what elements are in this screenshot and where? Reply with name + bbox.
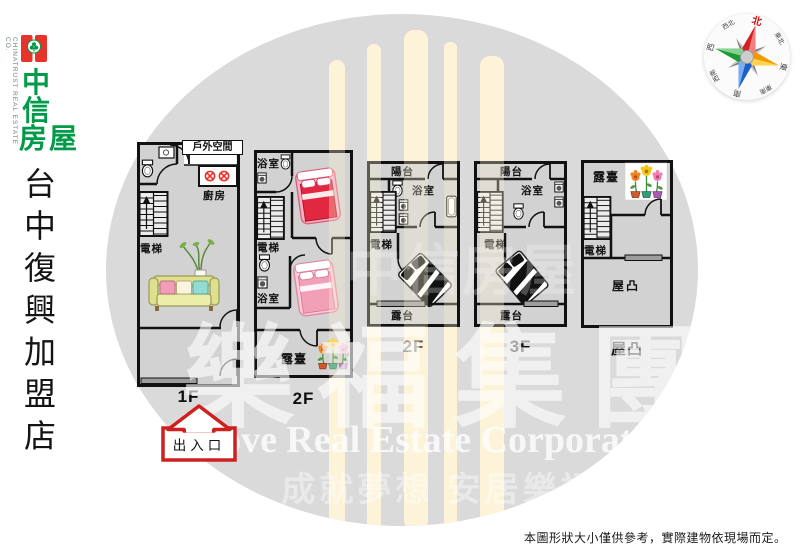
sofa-illustration — [149, 276, 219, 311]
store-name-vertical: 台中復興加盟店 — [15, 167, 61, 461]
terrace-label: 露台 — [500, 308, 523, 323]
floorplan-2f-b: 陽台 浴室 電梯 露台 — [367, 161, 460, 327]
floorplan-1f-drawing — [137, 142, 240, 387]
chinatrust-logo-icon — [21, 35, 47, 62]
terrace-label: 露臺 — [593, 168, 619, 185]
floor-tag-3f: 3F — [474, 337, 567, 357]
floorplan-2f-a: 浴室 電梯 浴室 露臺 — [254, 150, 353, 378]
balcony-label: 陽台 — [500, 164, 523, 179]
floorplan-2f-a-drawing — [254, 150, 353, 378]
elevator-label: 電梯 — [484, 237, 507, 252]
floor-tag-2f-a: 2F — [254, 389, 353, 409]
elevator-label: 電梯 — [584, 243, 607, 258]
bathroom-label: 浴室 — [257, 291, 280, 306]
bathroom-label: 浴室 — [412, 183, 435, 198]
compass-rose-icon: 北 東北 東 東南 南 西南 西 西北 — [702, 12, 792, 102]
terrace-label: 露臺 — [281, 350, 307, 367]
terrace-label: 露台 — [391, 308, 414, 323]
floorplan-1f: 戶外空間 廚房 電梯 — [137, 142, 240, 387]
floor-tag-roof: 屋凸 — [581, 338, 673, 359]
bathroom-label: 浴室 — [257, 156, 280, 171]
elevator-label: 電梯 — [257, 240, 280, 255]
floorplan-3f: 陽台 浴室 電梯 露台 — [474, 161, 567, 327]
floorplan-roof: 露臺 電梯 屋凸 — [581, 160, 673, 328]
entrance-label: 出入口 — [160, 434, 238, 454]
floor-tag-2f-b: 2F — [367, 337, 460, 357]
elevator-label: 電梯 — [370, 237, 393, 252]
entrance-marker: 出入口 — [160, 404, 238, 462]
logo-chars-fangwu: 房屋 — [19, 117, 81, 157]
outdoor-space-label: 戶外空間 — [182, 140, 243, 155]
kitchen-label: 廚房 — [203, 188, 226, 203]
roof-room-label: 屋凸 — [612, 277, 640, 294]
disclaimer-text: 本圖形狀大小僅供參考，實際建物依現場而定。 — [524, 529, 796, 546]
bathroom-label: 浴室 — [521, 183, 544, 198]
company-name-en-vertical: CHINATRUST REAL ESTATE CO. — [4, 37, 18, 155]
balcony-label: 陽台 — [391, 164, 414, 179]
elevator-label: 電梯 — [140, 241, 163, 256]
